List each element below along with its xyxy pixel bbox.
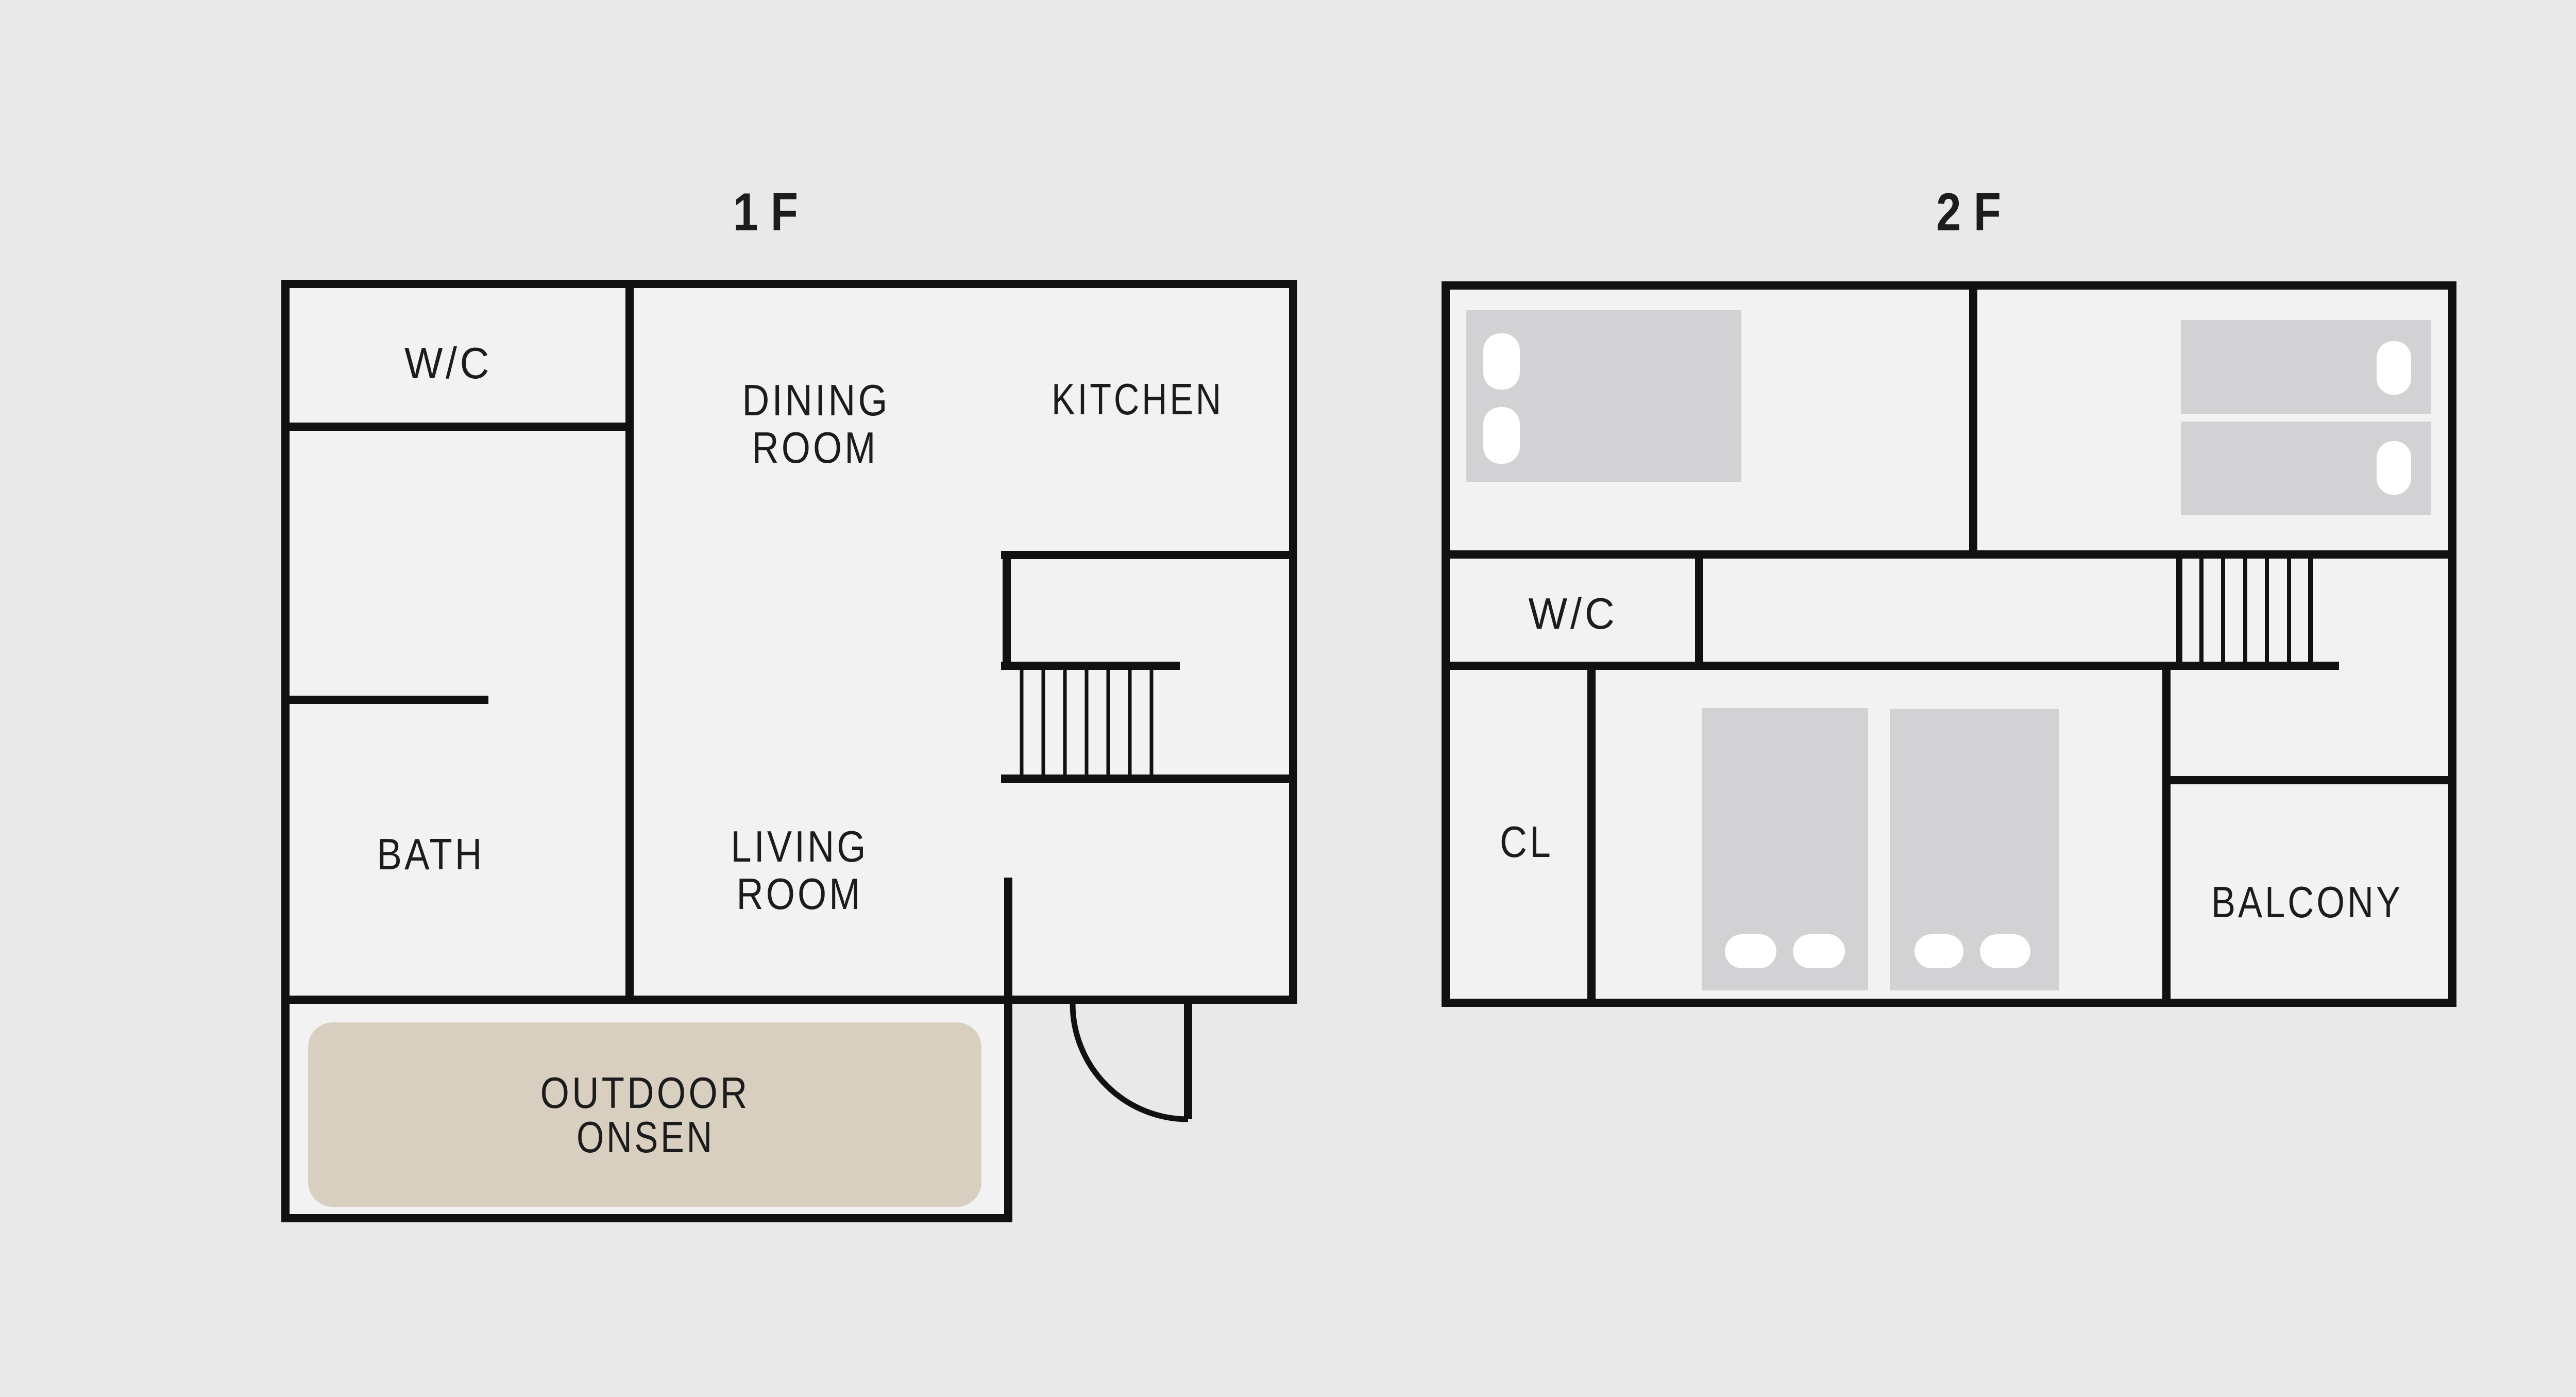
svg-text:W/C: W/C — [404, 339, 492, 388]
svg-text:DINING: DINING — [742, 376, 890, 425]
svg-text:CL: CL — [1500, 818, 1553, 867]
svg-text:1 F: 1 F — [733, 182, 798, 242]
svg-text:ROOM: ROOM — [737, 870, 863, 919]
svg-text:BALCONY: BALCONY — [2211, 878, 2403, 927]
svg-text:ROOM: ROOM — [752, 424, 878, 473]
svg-text:LIVING: LIVING — [731, 822, 869, 871]
svg-text:OUTDOOR: OUTDOOR — [540, 1069, 750, 1118]
svg-text:BATH: BATH — [377, 830, 485, 879]
svg-text:ONSEN: ONSEN — [577, 1113, 715, 1162]
svg-text:KITCHEN: KITCHEN — [1052, 375, 1224, 424]
svg-text:2 F: 2 F — [1936, 182, 2001, 242]
svg-text:W/C: W/C — [1529, 590, 1618, 638]
